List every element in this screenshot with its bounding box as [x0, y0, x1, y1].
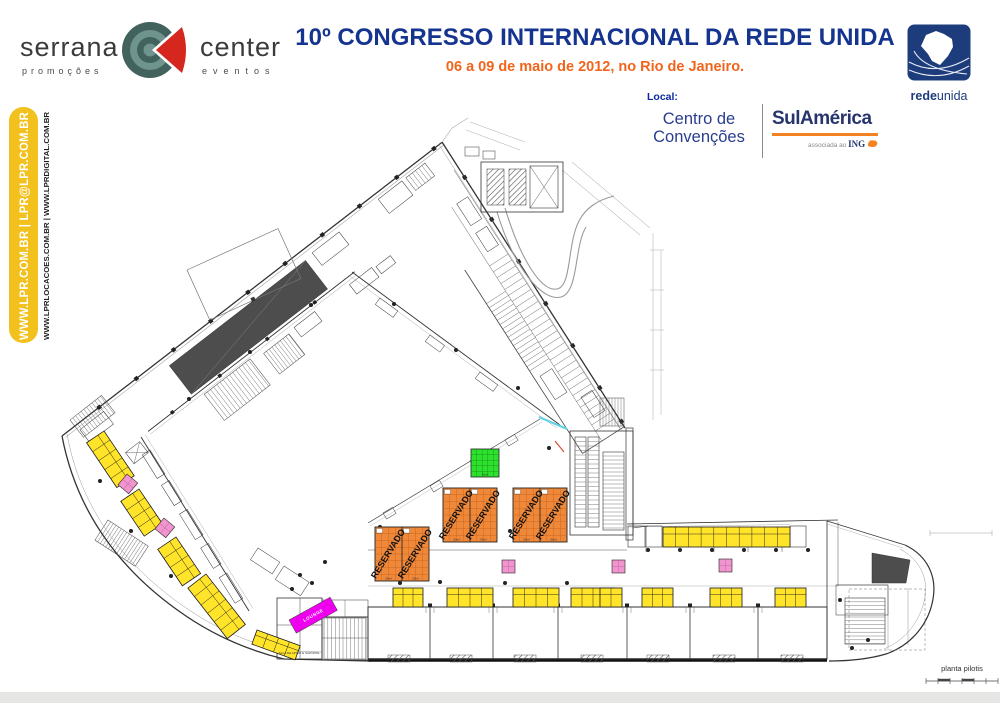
floorplan-drawing: 30m² RESERVADORESERVADO30m²30m²RESERVADO… — [0, 0, 1000, 703]
sidebar-secondary-url: WWW.LPRLOCACOES.COM.BR | WWW.LPRDIGITAL.… — [42, 111, 51, 340]
green-booth: 30m² — [471, 449, 499, 477]
reserved-blocks: RESERVADORESERVADO30m²30m²RESERVADORESER… — [369, 488, 572, 581]
reserved-block-2: RESERVADORESERVADO30m²30m² — [437, 488, 502, 542]
booth-group-4 — [188, 574, 246, 639]
reserved-area-label: 30m² — [550, 538, 557, 542]
pink-booth-3 — [719, 559, 732, 572]
lounge-block: LOUNGE — [289, 597, 337, 633]
booth-group-3 — [158, 537, 201, 586]
sidebar: WWW.LPR.COM.BR | LPR@LPR.COM.BR WWW.LPRL… — [0, 100, 62, 360]
booth-group-11 — [642, 588, 673, 607]
green-area-label: 30m² — [482, 473, 489, 477]
reserved-area-label: 30m² — [523, 538, 530, 542]
booth-group-8 — [513, 588, 559, 607]
reserved-block-3: RESERVADORESERVADO30m²30m² — [507, 488, 572, 542]
pink-booth-1 — [502, 560, 515, 573]
reserved-area-label: 30m² — [412, 577, 419, 581]
reserved-area-label: 30m² — [480, 538, 487, 542]
green-booth: 30m² — [471, 449, 499, 477]
dark-area-right — [872, 553, 910, 583]
right-wing — [416, 166, 626, 453]
booth-group-12 — [710, 588, 742, 607]
booth-group-6 — [393, 588, 423, 607]
support-room-label: SALA DE APOIO E SUPORTE — [279, 651, 320, 655]
booth-group-5 — [252, 630, 300, 660]
reserved-area-label: 30m² — [453, 538, 460, 542]
reserved-block-1: RESERVADORESERVADO30m²30m² — [369, 527, 434, 581]
booth-group-14 — [663, 527, 790, 547]
reserved-area-label: 30m² — [385, 577, 392, 581]
event-floorplan-poster: 30m² RESERVADORESERVADO30m²30m²RESERVADO… — [0, 0, 1000, 703]
booth-group-10 — [600, 588, 622, 607]
scale-bar — [926, 678, 998, 684]
booth-group-7 — [447, 588, 493, 607]
sidebar-primary-url: WWW.LPR.COM.BR | LPR@LPR.COM.BR — [17, 112, 31, 340]
pink-booth-2 — [612, 560, 625, 573]
lounge-area: LOUNGE — [289, 597, 337, 633]
booth-group-13 — [775, 588, 806, 607]
dark-areas — [872, 553, 910, 583]
left-wing — [61, 141, 495, 505]
plan-caption: planta pilotis — [941, 664, 983, 673]
yellow-booths — [87, 431, 806, 660]
